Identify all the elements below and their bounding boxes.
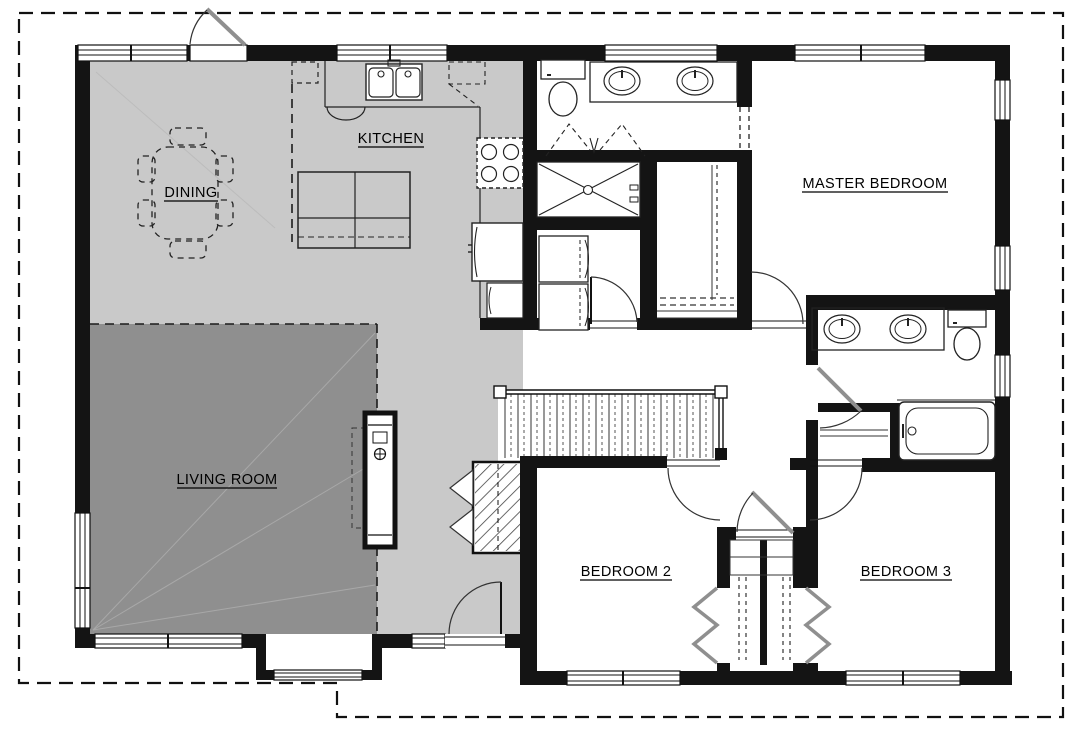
bay-window-floor xyxy=(266,634,372,670)
refrigerator xyxy=(468,223,523,281)
label-master-bedroom: MASTER BEDROOM xyxy=(803,176,948,192)
window-master-right-1 xyxy=(995,80,1010,120)
window-kitchen xyxy=(337,45,447,61)
bedroom2-door xyxy=(667,460,720,520)
label-bedroom-3: BEDROOM 3 xyxy=(861,564,952,580)
linen-door xyxy=(736,492,793,537)
wall-closet-east xyxy=(793,663,806,675)
vanity-double-master xyxy=(812,308,944,350)
window-bedroom3 xyxy=(846,671,960,685)
wall-closet-north xyxy=(793,527,806,540)
master-bedroom-door xyxy=(751,272,806,328)
washer xyxy=(539,236,588,282)
wall-bed3-west xyxy=(806,663,818,675)
wall-closet-divider xyxy=(760,540,767,665)
label-bedroom-2: BEDROOM 2 xyxy=(581,564,672,580)
wall-bed3-west xyxy=(806,470,818,588)
wall-bath-south xyxy=(790,458,812,470)
bifold-door-bedroom3 xyxy=(806,588,829,663)
label-living-room: LIVING ROOM xyxy=(176,472,277,488)
wall-closet-west xyxy=(717,663,730,675)
label-kitchen: KITCHEN xyxy=(358,131,424,147)
vanity-double xyxy=(590,62,737,102)
floor-plan-canvas: KITCHEN DINING LIVING ROOM MASTER BEDROO… xyxy=(0,0,1079,737)
window-bay xyxy=(274,670,362,680)
master-bath xyxy=(812,308,995,460)
masterbath-linen xyxy=(820,430,888,436)
wall-laundry-closet xyxy=(640,150,657,330)
wall-closet-north xyxy=(717,527,736,540)
window-master-right-2 xyxy=(995,246,1010,290)
stair-wall-stub xyxy=(715,448,727,460)
master-bath-door xyxy=(818,368,861,428)
floor-areas xyxy=(90,61,523,670)
wall-bed2-west xyxy=(520,456,537,685)
master-cased-opening xyxy=(737,107,752,150)
wall-entry-bottom xyxy=(382,634,412,648)
shower-drain xyxy=(584,186,593,195)
kitchen-island xyxy=(298,172,410,248)
bathtub xyxy=(897,400,995,460)
label-dining: DINING xyxy=(164,185,217,201)
laundry-door xyxy=(590,277,637,328)
back-door xyxy=(190,9,247,61)
shower xyxy=(537,162,640,217)
bifold-door-bedroom2 xyxy=(694,588,717,663)
toilet xyxy=(541,60,585,116)
arrow-symbol xyxy=(590,138,598,152)
floor-plan-drawing: KITCHEN DINING LIVING ROOM MASTER BEDROO… xyxy=(0,0,1079,737)
window-bath xyxy=(605,45,717,61)
range-stove xyxy=(477,138,523,188)
wall-shower-south xyxy=(523,217,645,230)
wall-bath-shower xyxy=(537,150,737,162)
wall-kitchen-bath xyxy=(523,45,537,330)
window-bedroom2 xyxy=(567,671,680,685)
base-cabinet xyxy=(487,283,523,318)
window-dining xyxy=(78,45,187,61)
laundry-appliances xyxy=(539,236,589,330)
window-living-bottom xyxy=(95,634,242,648)
wall-stair-south xyxy=(533,456,667,468)
wall-master-west xyxy=(737,45,752,318)
dryer xyxy=(539,284,588,330)
hall-bath xyxy=(537,60,737,330)
walkin-closet xyxy=(657,165,737,318)
toilet-master xyxy=(948,310,986,360)
newel-post xyxy=(494,386,506,398)
newel-post xyxy=(715,386,727,398)
window-master xyxy=(795,45,925,61)
window-entry-sidelite xyxy=(412,634,445,648)
kitchen-sink xyxy=(366,60,422,100)
staircase xyxy=(494,386,727,462)
window-living-left xyxy=(75,513,90,628)
window-masterbath xyxy=(995,355,1010,397)
